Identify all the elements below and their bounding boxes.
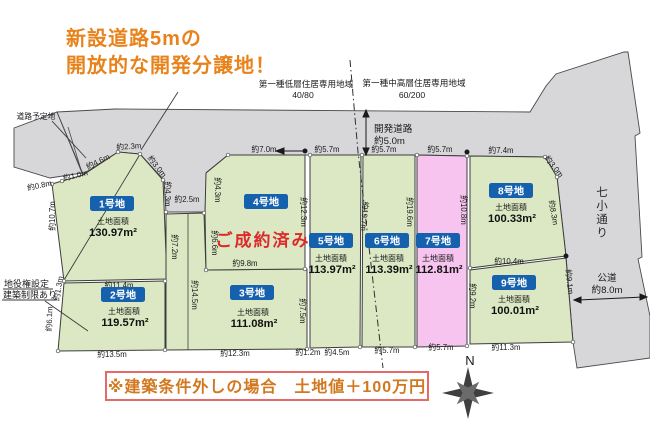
note-text: ※建築条件外しの場合 土地値＋100万円: [108, 377, 426, 396]
land-subdivision-flyer: 新設道路5mの 開放的な開発分譲地！ 第一種低層住居専用地域 40/80 第一種…: [0, 0, 650, 436]
plot-7-area: [417, 155, 467, 347]
easement-label-line2: 建築制限あり: [3, 289, 57, 300]
dimension-label: 約7.0m: [251, 144, 276, 154]
top-row-dot-2: [465, 150, 469, 154]
dimension-label: 約5.7m: [427, 144, 452, 154]
dimension-label: 約12.3m: [220, 348, 249, 358]
dimension-label: 約1.2m: [295, 347, 320, 357]
plot-7-badge-label: 7号地: [425, 235, 452, 248]
development-road-label: 開発道路: [374, 123, 413, 135]
dimension-label: 約7.4m: [488, 145, 513, 155]
dimension-label: 約9.2m: [468, 283, 478, 308]
planned-road-label: 道路予定地: [17, 111, 56, 121]
zoning-right-ratio: 60/200: [399, 90, 426, 100]
dimension-label: 約19.6m: [405, 197, 415, 226]
dimension-label: 約13.5m: [97, 349, 126, 359]
dimension-label: 約5.7m: [371, 144, 396, 154]
plot-9-area-value: 100.01m²: [491, 305, 539, 317]
dimension-label: 約4.3m: [213, 177, 223, 202]
dimension-label: 約0.8m: [26, 178, 53, 193]
dimension-label: 約11.3m: [492, 342, 521, 352]
plot-8-area-value: 100.33m²: [488, 213, 536, 225]
plot-3-area-value: 111.08m²: [231, 318, 278, 330]
plot-5-badge-label: 5号地: [318, 235, 345, 248]
plot-4-area: [205, 155, 305, 270]
plot-6-area-label: 土地面積: [372, 253, 404, 263]
dimension-label: 約4.5m: [324, 347, 349, 357]
plot-2-area-value: 119.57m²: [101, 317, 149, 329]
plot-2-badge-label: 2号地: [110, 289, 137, 302]
zoning-left-ratio: 40/80: [292, 90, 314, 100]
plot-7-area-value: 112.81m²: [415, 264, 463, 276]
street-name-label: 七小通り: [595, 186, 608, 240]
plot-8-area-label: 土地面積: [495, 202, 527, 212]
plot-6-badge-label: 6号地: [374, 235, 401, 248]
plot-9-badge-label: 9号地: [501, 277, 528, 290]
dimension-label: 約5.7m: [428, 342, 453, 352]
plot-4-badge-label: 4号地: [253, 196, 280, 209]
plot-5-area-label: 土地面積: [315, 253, 347, 263]
compass-north-label: N: [465, 353, 474, 368]
dimension-label: 約9.8m: [232, 258, 257, 268]
dimension-label: 約5.7m: [314, 144, 339, 154]
plot-3-badge-label: 3号地: [239, 287, 266, 300]
easement-label-line1: 地役権設定: [4, 278, 49, 289]
dimension-label: 約5.7m: [374, 345, 399, 355]
public-road-label: 公道: [597, 272, 617, 284]
plot-5-area-value: 113.97m²: [308, 264, 356, 276]
zoning-left-name: 第一種低層住居専用地域: [259, 78, 354, 89]
page-title-line1: 新設道路5mの: [66, 26, 202, 50]
zoning-right-name: 第一種中高層住居専用地域: [362, 77, 466, 88]
plot-1-badge-label: 1号地: [99, 198, 126, 211]
dimension-label: 約10.4m: [494, 256, 523, 266]
dimension-label: 約12.3m: [299, 197, 309, 226]
dimension-label: 約14.5m: [190, 280, 200, 309]
dimension-label: 約4.3m: [163, 181, 173, 206]
plot-9-area-label: 土地面積: [498, 294, 530, 304]
plot-2-area-label: 土地面積: [108, 306, 140, 316]
plot-1-area-label: 土地面積: [97, 216, 129, 226]
plot-6-area-value: 113.39m²: [365, 264, 413, 276]
dimension-label: 約10.7m: [47, 201, 57, 230]
dimension-label: 約2.5m: [174, 194, 199, 204]
plot-5-area: [310, 155, 361, 348]
dimension-label: 約19.7m: [359, 201, 371, 231]
plot-1-area-value: 130.97m²: [89, 227, 137, 239]
public-road-width: 約8.0m: [592, 284, 623, 296]
right-edge-dot: [564, 254, 568, 258]
page-title-line2: 開放的な開発分譲地！: [66, 53, 276, 77]
note-box: ※建築条件外しの場合 土地値＋100万円: [106, 372, 428, 400]
plot-8-badge-label: 8号地: [498, 185, 525, 198]
dimension-label: 約6.1m: [44, 306, 55, 331]
plot-3-area-label: 土地面積: [237, 307, 269, 317]
top-row-dot: [303, 149, 307, 153]
plot-7-area-label: 土地面積: [422, 253, 454, 263]
plot-4-sold-status: ご成約済み: [216, 230, 311, 250]
dimension-label: 約7.5m: [298, 298, 308, 323]
dimension-label: 約7.2m: [170, 234, 180, 259]
site-plan-map: 新設道路5mの 開放的な開発分譲地！ 第一種低層住居専用地域 40/80 第一種…: [0, 0, 650, 436]
dimension-label: 約2.3m: [116, 140, 142, 152]
dimension-label: 約10.8m: [459, 195, 469, 224]
compass-rose: N: [442, 353, 494, 419]
